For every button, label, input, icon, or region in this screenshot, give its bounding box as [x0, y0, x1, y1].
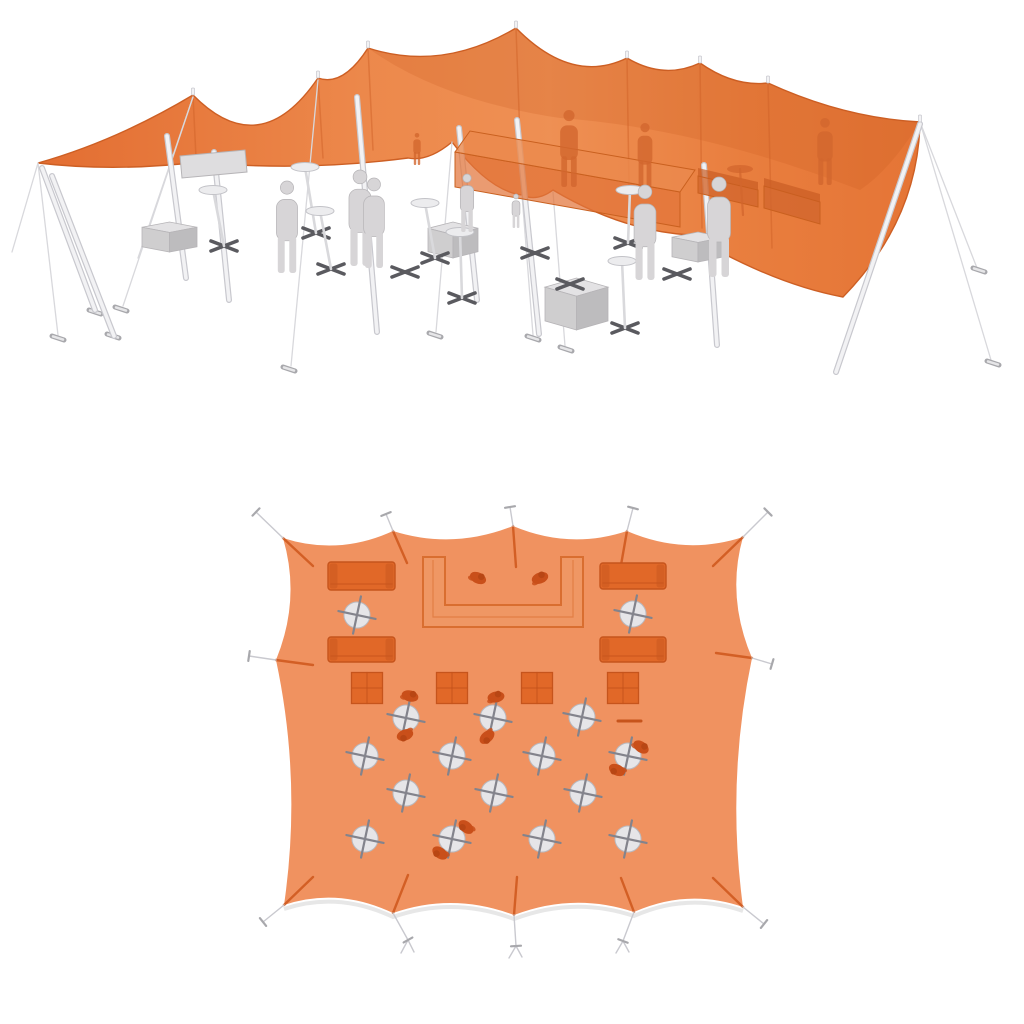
- poseur-table: [608, 257, 638, 334]
- plan-guy-rope: [509, 946, 516, 958]
- plan-sofa: [600, 563, 666, 589]
- guy-rope: [920, 122, 977, 268]
- table-x-base: [664, 269, 690, 279]
- pole-tip: [918, 115, 921, 122]
- plan-stake-tick: [248, 651, 249, 661]
- poseur-table: [306, 207, 344, 275]
- plan-guy-rope: [393, 913, 408, 940]
- plan-square-table: [437, 673, 468, 704]
- pole-tip: [698, 56, 701, 63]
- plan-square-table: [608, 673, 639, 704]
- plan-guy-rope: [743, 512, 768, 537]
- plan-stake-tick: [404, 938, 413, 943]
- cube-seat: [142, 222, 197, 252]
- plan-sofa: [328, 637, 395, 662]
- pole-tip: [625, 51, 628, 58]
- pole-tip: [766, 76, 769, 83]
- plan-stake-tick: [628, 507, 638, 510]
- table-x-base: [522, 248, 548, 258]
- plan-square-table: [352, 673, 383, 704]
- plan-guy-rope: [743, 907, 764, 924]
- plan-guy-rope: [249, 656, 276, 660]
- pole-tip: [366, 41, 369, 48]
- plan-square-table: [522, 673, 553, 704]
- plan-guy-rope: [627, 508, 633, 531]
- plan-guy-rope: [752, 658, 772, 664]
- tent-pole: [42, 168, 95, 310]
- tent-renders-page: [0, 0, 1024, 1024]
- table-x-base: [392, 267, 418, 277]
- poseur-table-top-tinted: [727, 165, 753, 173]
- plan-stake-tick: [761, 920, 767, 928]
- plan-guy-rope: [616, 941, 623, 953]
- plan-guy-rope: [408, 940, 414, 952]
- guy-rope: [12, 163, 38, 252]
- tent-floor-plan-view: [248, 506, 773, 958]
- pole-tip: [191, 88, 194, 95]
- plan-guy-rope: [623, 912, 634, 941]
- person-figure: [512, 194, 520, 228]
- tent-3d-perspective-view: [12, 21, 999, 372]
- pole-tip: [514, 21, 517, 28]
- plan-stake-tick: [505, 506, 515, 508]
- plan-sofa: [328, 562, 395, 590]
- plan-guy-rope: [256, 512, 283, 538]
- plan-guy-rope: [386, 514, 393, 531]
- tent-pole: [52, 176, 114, 336]
- plan-stake-tick: [511, 946, 521, 947]
- guy-rope: [920, 122, 991, 360]
- pole-tip: [316, 71, 319, 78]
- plan-stake-tick: [260, 918, 266, 926]
- stretch-tent-scene: [0, 0, 1024, 1024]
- plan-guy-rope: [516, 946, 522, 957]
- person-figure: [276, 181, 297, 273]
- plan-guy-rope: [263, 905, 284, 922]
- plan-sofa: [600, 637, 666, 662]
- plan-guy-rope: [510, 507, 513, 526]
- plan-stake-tick: [771, 659, 774, 669]
